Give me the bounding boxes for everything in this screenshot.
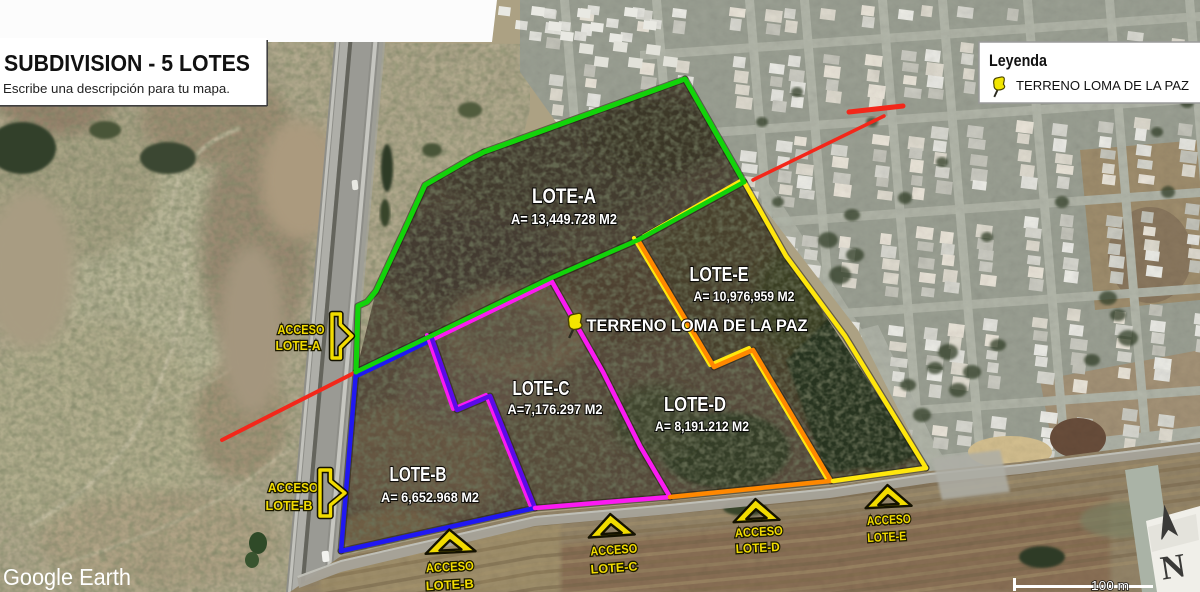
svg-text:ACCESO: ACCESO	[867, 512, 912, 528]
svg-text:LOTE-B: LOTE-B	[266, 499, 313, 513]
svg-text:A= 8,191.212 M2: A= 8,191.212 M2	[655, 418, 749, 434]
svg-text:ACCESO: ACCESO	[278, 323, 325, 337]
svg-text:SUBDIVISION - 5 LOTES: SUBDIVISION - 5 LOTES	[4, 50, 250, 76]
svg-text:A=7,176.297 M2: A=7,176.297 M2	[508, 401, 603, 417]
svg-text:A= 6,652.968 M2: A= 6,652.968 M2	[381, 489, 479, 505]
svg-text:TERRENO LOMA DE LA PAZ: TERRENO LOMA DE LA PAZ	[1016, 79, 1189, 93]
svg-text:TERRENO LOMA DE LA PAZ: TERRENO LOMA DE LA PAZ	[587, 316, 808, 335]
svg-text:LOTE-C: LOTE-C	[513, 378, 570, 400]
svg-text:LOTE-E: LOTE-E	[867, 529, 907, 545]
svg-text:LOTE-B: LOTE-B	[390, 464, 447, 486]
svg-text:Google Earth: Google Earth	[3, 564, 131, 590]
svg-text:A= 10,976,959 M2: A= 10,976,959 M2	[694, 288, 795, 304]
svg-text:LOTE-E: LOTE-E	[690, 264, 749, 286]
svg-text:100 m: 100 m	[1091, 579, 1129, 592]
svg-text:LOTE-A: LOTE-A	[276, 339, 321, 353]
svg-text:LOTE-B: LOTE-B	[425, 577, 474, 592]
svg-text:LOTE-D: LOTE-D	[735, 540, 780, 556]
svg-text:A= 13,449.728 M2: A= 13,449.728 M2	[511, 211, 617, 228]
svg-text:ACCESO: ACCESO	[735, 524, 784, 541]
svg-text:Leyenda: Leyenda	[989, 52, 1048, 70]
svg-text:LOTE-D: LOTE-D	[664, 394, 726, 416]
svg-text:ACCESO: ACCESO	[268, 481, 318, 495]
svg-text:LOTE-A: LOTE-A	[532, 185, 596, 208]
svg-text:ACCESO: ACCESO	[426, 559, 475, 576]
svg-text:Escribe una descripción para t: Escribe una descripción para tu mapa.	[3, 81, 230, 96]
